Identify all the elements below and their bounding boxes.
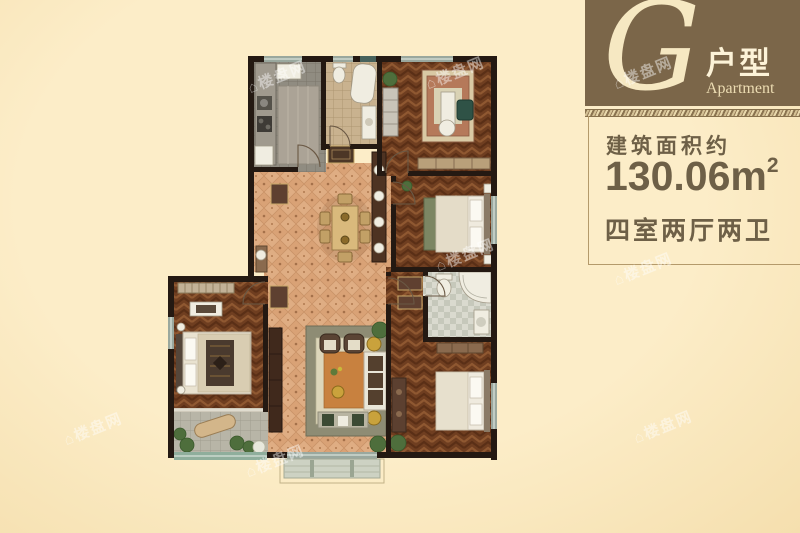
bathtub [350, 63, 378, 105]
gold-plate [332, 386, 344, 398]
dining-chair [320, 212, 330, 225]
stove [257, 116, 272, 132]
dining-chair [360, 212, 370, 225]
area-number: 130.06m [605, 153, 767, 199]
entry-door [360, 56, 376, 62]
doormat [398, 277, 422, 290]
dining-chair [338, 252, 352, 262]
study-chair [457, 100, 473, 120]
dresser [437, 343, 483, 353]
fridge [277, 64, 301, 79]
ottoman [439, 120, 455, 136]
flowers [253, 441, 265, 453]
plant [180, 438, 194, 452]
area-value: 130.06m2 [605, 153, 779, 200]
hall-rug [271, 184, 288, 204]
area-superscript: 2 [767, 154, 779, 177]
listing-image: G 户型 Apartment 建筑面积约 130.06m2 四室两厅两卫 ⌂楼盘… [0, 0, 800, 533]
balcony-bottom [280, 459, 384, 483]
kitchen [254, 62, 326, 172]
desk [392, 378, 406, 432]
type-subtitle: Apartment [706, 80, 774, 98]
side-table [367, 411, 381, 425]
hall-rug [270, 286, 288, 308]
info-panel: 建筑面积约 130.06m2 四室两厅两卫 [588, 116, 800, 265]
sofa [364, 352, 386, 410]
wall-lamp [177, 323, 185, 331]
doormat [398, 296, 422, 309]
balcony-bottom-floor [284, 459, 380, 478]
flower-deco [338, 367, 342, 371]
plant [230, 436, 244, 450]
nightstand [484, 184, 492, 193]
bed [436, 194, 490, 254]
study-bedroom [377, 56, 491, 176]
toilet-1 [333, 67, 345, 83]
bench-bottom [318, 412, 368, 428]
nightstand [484, 255, 492, 264]
plant [370, 436, 386, 452]
washer [255, 146, 273, 165]
flower-deco [331, 369, 338, 376]
wall-lamp [177, 386, 185, 394]
page: { "badge": { "letter": "G", "type_label"… [0, 0, 800, 533]
apartment-type-badge: G 户型 Apartment [585, 0, 800, 106]
balcony-left [168, 408, 268, 457]
dining-chair [320, 230, 330, 243]
master-bedroom [168, 276, 268, 412]
type-label: 户型 [706, 38, 772, 83]
layout-spec: 四室两厅两卫 [605, 211, 773, 247]
type-letter: G [603, 0, 700, 108]
plant [372, 322, 388, 338]
dining-chair [360, 230, 370, 243]
bed [436, 370, 490, 432]
master-bed [176, 332, 251, 394]
plant [402, 181, 412, 191]
dining-chair [338, 194, 352, 204]
plant [390, 435, 406, 451]
plant [383, 72, 397, 86]
side-table [367, 337, 381, 351]
mirror [256, 250, 266, 260]
